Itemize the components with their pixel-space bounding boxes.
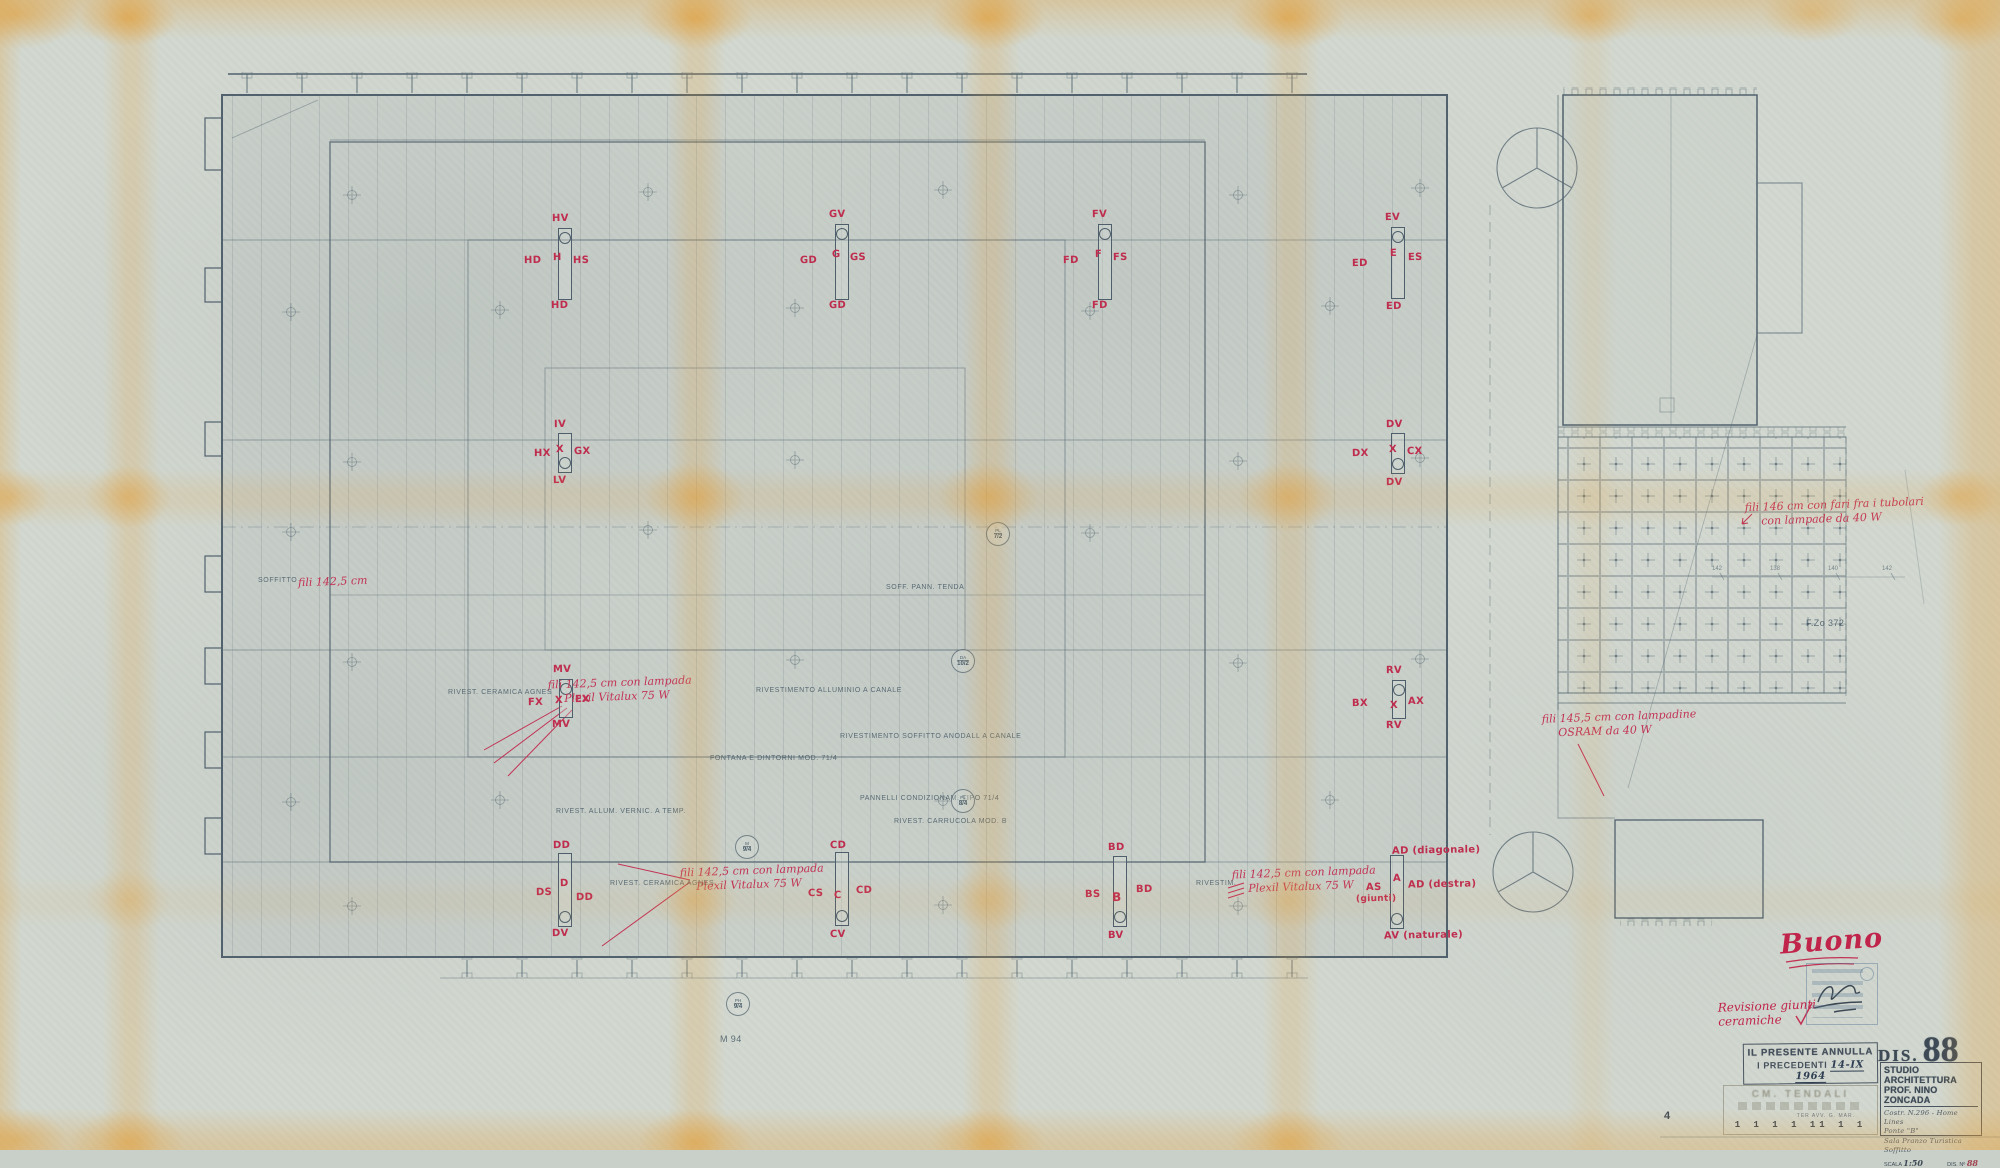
- fixture-label: AV (naturale): [1384, 929, 1463, 941]
- fixture-label: DD: [576, 892, 593, 903]
- fixture-label: GX: [574, 446, 591, 457]
- pencil-note: RIVESTIMENTO ALLUMINIO A CANALE: [756, 687, 902, 694]
- fixture-H: [558, 228, 572, 300]
- detail-bubble: M 9/4: [735, 835, 759, 859]
- project-line: Sala Pranzo Turistica: [1884, 1137, 1978, 1146]
- dimension-value: 140: [1828, 566, 1838, 572]
- dimension-value: 138: [1770, 566, 1780, 572]
- detail-bubble: DA 10/2: [951, 649, 975, 673]
- fixture-label: AD (destra): [1408, 878, 1477, 890]
- architect-name: PROF. NINO ZONCADA: [1884, 1085, 1978, 1107]
- fixture-label: GD: [829, 300, 846, 311]
- fixture-label: G: [832, 249, 841, 260]
- project-line: Soffitto: [1884, 1146, 1978, 1155]
- fixture-label: GS: [850, 252, 866, 263]
- fixture-label: X: [1390, 700, 1398, 711]
- revision-note: Revisione giunti ceramiche: [1718, 998, 1817, 1029]
- fixture-label: A: [1393, 873, 1401, 884]
- fixture-label: X: [556, 444, 564, 455]
- pencil-note: SOFF. PANN. TENDA: [886, 584, 964, 591]
- fixture-label: BD: [1136, 884, 1153, 895]
- signature-stamp: [1806, 963, 1878, 1025]
- fixture-E: [1391, 227, 1405, 299]
- fixture-label: DV: [552, 928, 569, 939]
- title-block-footer: SCALA 1:50 DIS. Nº 88: [1884, 1158, 1978, 1168]
- fixture-label: FD: [1063, 255, 1079, 266]
- annulla-line1: IL PRESENTE ANNULLA: [1744, 1046, 1877, 1058]
- fixture-label: BS: [1085, 889, 1101, 900]
- fixture-label: X: [1389, 444, 1397, 455]
- detail-bubble: PL 8/4: [951, 789, 975, 813]
- dimension-value: 142: [1882, 566, 1892, 572]
- fixture-G: [835, 224, 849, 300]
- lamp-annotation-3: fili 142,5 cm con lampada Plexil Vitalux…: [1232, 863, 1377, 896]
- scale: SCALA 1:50: [1884, 1158, 1923, 1168]
- fixture-label: D: [560, 878, 569, 889]
- fixture-label: CV: [830, 929, 846, 940]
- sheet-number: DIS. Nº 88: [1947, 1158, 1978, 1168]
- fixture-label: ED: [1352, 258, 1368, 269]
- fixture-label: ED: [1386, 301, 1402, 312]
- pencil-note: M 94: [720, 1034, 742, 1044]
- fixture-label: FX: [528, 697, 543, 708]
- fixture-label: BX: [1352, 698, 1368, 709]
- materials-stamp-values: 1 1 1 1 11 1 1: [1724, 1120, 1877, 1130]
- project-line: Costr. N.296 - Home Lines: [1884, 1109, 1978, 1127]
- fixture-label: AX: [1408, 696, 1424, 707]
- pencil-note: RIVEST. CERAMICA AGNES: [448, 689, 552, 696]
- approval-note: Buono: [1779, 922, 1884, 960]
- fixture-label: F: [1095, 249, 1102, 260]
- fixture-label: MV: [552, 719, 570, 730]
- fixture-label: AD (diagonale): [1392, 844, 1480, 857]
- fixture-label: C: [834, 890, 842, 901]
- fixture-label: BV: [1108, 930, 1124, 941]
- annulla-stamp: IL PRESENTE ANNULLA I PRECEDENTI 14-IX 1…: [1743, 1042, 1878, 1084]
- fixture-label: FV: [1092, 209, 1107, 220]
- fixture-label: RV: [1386, 665, 1402, 676]
- wire-length-note: fili 142,5 cm: [298, 574, 368, 590]
- studio-name: STUDIO ARCHITETTURA: [1884, 1065, 1978, 1085]
- fixture-label: FD: [1092, 300, 1108, 311]
- faded-text-lines: [1738, 1102, 1863, 1110]
- lamp-annotation-4: fili 146 cm con fari fra i tubolari con …: [1745, 495, 1925, 529]
- pencil-note: RIVEST. ALLUM. VERNIC. A TEMP.: [556, 808, 686, 815]
- fixture-label: RV: [1386, 720, 1402, 731]
- fixture-label: EV: [1385, 212, 1400, 223]
- fixture-label: FS: [1113, 252, 1128, 263]
- materials-stamp-number: 4: [1664, 1110, 1670, 1122]
- pencil-note: RIVESTIMENTO SOFFITTO ANODALL A CANALE: [840, 733, 1021, 740]
- fixture-label: CD: [830, 840, 846, 851]
- fixture-label: IV: [554, 419, 566, 430]
- fixture-label: CD: [856, 885, 872, 896]
- fixture-label: DV: [1386, 477, 1403, 488]
- fixture-label: DS: [536, 887, 552, 898]
- blueprint-sheet: HV HD H HS HD GV GD G GS GD FV FD F FS F…: [0, 0, 2000, 1150]
- fixture-label: ES: [1408, 252, 1423, 263]
- dimension-value: 142: [1712, 566, 1722, 572]
- lamp-annotation-5: fili 145,5 cm con lampadine OSRAM da 40 …: [1542, 707, 1697, 740]
- fixture-label: HD: [551, 300, 568, 311]
- fixture-label: BD: [1108, 842, 1125, 853]
- project-line: Ponte "B": [1884, 1127, 1978, 1136]
- fixture-D2: [558, 853, 572, 927]
- fixture-A: [1390, 855, 1404, 929]
- materials-stamp-title: CM. TENDALI: [1724, 1089, 1877, 1100]
- fixture-label: E: [1390, 248, 1397, 259]
- fixture-label: CX: [1407, 446, 1423, 457]
- pencil-note: FONTANA E DINTORNI MOD. 71/4: [710, 755, 837, 762]
- fixture-label: LV: [553, 475, 567, 486]
- fixture-label: GD: [800, 255, 817, 266]
- lamp-annotation-2: fili 142,5 cm con lampada Plexil Vitalux…: [680, 861, 825, 894]
- materials-stamp-columns: TER AVV. G. MAR.: [1724, 1113, 1877, 1119]
- detail-bubble: PH 9/4: [726, 992, 750, 1016]
- pencil-note: RIVEST. CERAMICA AGNES: [610, 880, 714, 887]
- pencil-note: RIVESTIM.: [1196, 880, 1236, 887]
- fixture-F: [1098, 224, 1112, 300]
- fixture-label: H: [553, 252, 562, 263]
- fixture-label: MV: [553, 664, 571, 675]
- fixture-label: DD: [553, 840, 570, 851]
- fixture-label: CS: [808, 888, 824, 899]
- detail-bubble: PL 7/2: [986, 522, 1010, 546]
- pencil-note: SOFFITTO: [258, 577, 297, 584]
- pencil-note: PANNELLI CONDIZIONAM. TIPO 71/4: [860, 795, 999, 802]
- fixture-label: GV: [829, 209, 846, 220]
- title-block: STUDIO ARCHITETTURA PROF. NINO ZONCADA C…: [1880, 1062, 1982, 1136]
- fixture-label: DX: [1352, 448, 1369, 459]
- fixture-label: DV: [1386, 419, 1403, 430]
- fixture-label: HS: [573, 255, 589, 266]
- fixture-label: (giunti): [1356, 894, 1397, 905]
- fixture-label: B: [1112, 890, 1122, 904]
- pencil-note: RIVEST. CARRUCOLA MOD. B: [894, 818, 1007, 825]
- fixture-label: HV: [552, 213, 569, 224]
- fixture-label: HX: [534, 448, 551, 459]
- lamp-annotation-1: fili 142,5 cm con lampada Plexil Vitalux…: [548, 673, 693, 706]
- materials-stamp: CM. TENDALI TER AVV. G. MAR. 1 1 1 1 11 …: [1723, 1085, 1878, 1135]
- fixture-label: HD: [524, 255, 541, 266]
- file-reference: F.Zo 372: [1806, 618, 1844, 628]
- annulla-line2: I PRECEDENTI 14-IX 1964: [1744, 1059, 1877, 1082]
